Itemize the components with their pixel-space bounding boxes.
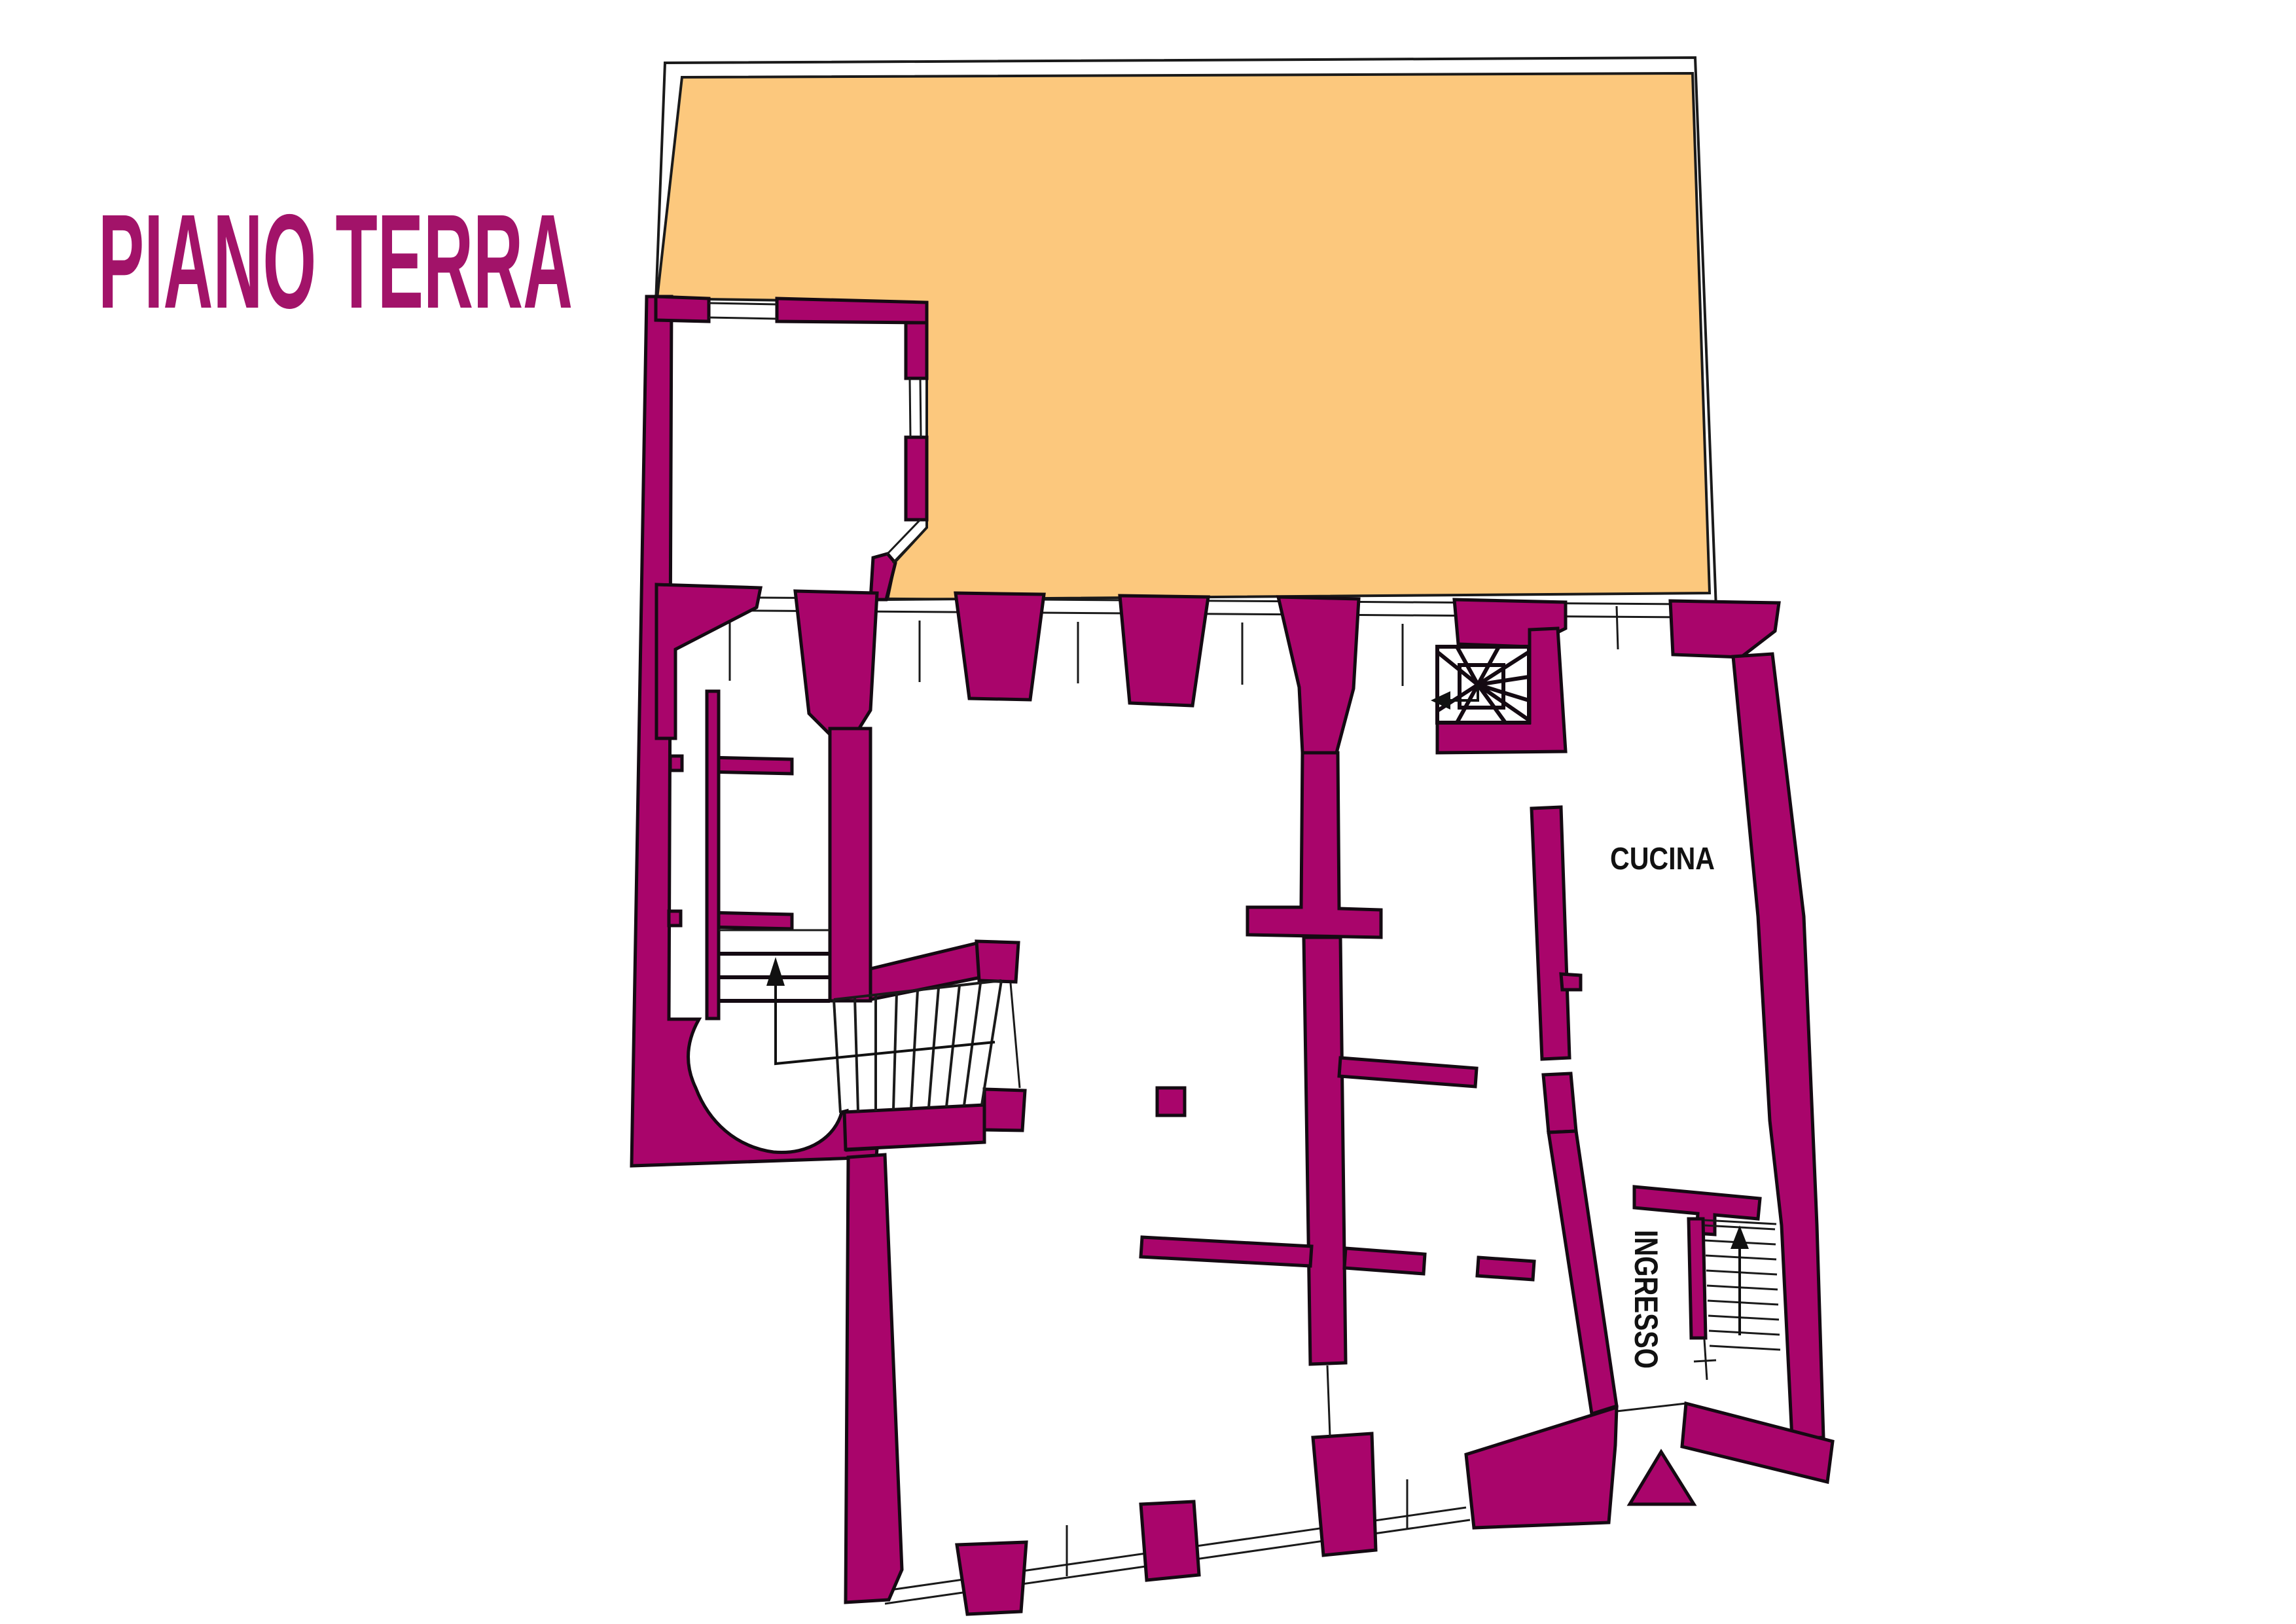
pillar [1278, 597, 1359, 753]
pillar [956, 593, 1044, 700]
lower-horizontal-wall-mid [1344, 1248, 1425, 1274]
room-label-cucina: CUCINA [1610, 842, 1715, 876]
pillar [1141, 1502, 1199, 1580]
door-stub [670, 756, 682, 770]
entrance-stair-strip [1689, 1219, 1706, 1338]
pillar [795, 591, 877, 750]
pillar [957, 1542, 1026, 1614]
winder-staircase [1431, 647, 1529, 723]
cucina-left-wall-lower [1543, 1074, 1576, 1132]
stair-pillar-bottom [984, 1089, 1025, 1130]
door-stub [669, 911, 681, 926]
up-arrow-icon [1731, 1225, 1749, 1249]
door-line [1327, 1365, 1330, 1436]
room-right-wall-lower [906, 437, 927, 520]
cucina-left-wall [1532, 807, 1570, 1059]
lower-left-outer-wall [846, 1155, 902, 1602]
floor-plan-page: PIANO TERRA [0, 0, 2296, 1624]
room-top-wall-right [777, 298, 927, 323]
pillar [1120, 596, 1208, 706]
room-label-ingresso: INGRESSO [1628, 1230, 1664, 1369]
cucina-wall-stub [1561, 974, 1581, 990]
room-top-wall-left [656, 297, 709, 321]
up-arrow-icon [766, 957, 785, 986]
stair-fan-bottom-wall [844, 1105, 984, 1149]
stair-pillar-top [977, 941, 1018, 982]
middle-wall-upper [1247, 753, 1381, 937]
ingresso-left-wall [1549, 1131, 1617, 1414]
lower-horizontal-wall-right [1477, 1257, 1534, 1280]
courtyard-area [657, 73, 1710, 600]
bottom-right-wall-mass [1466, 1407, 1617, 1528]
pillar [1313, 1434, 1376, 1555]
stair-right-wall [830, 729, 870, 1001]
top-right-corner-wall [1670, 601, 1779, 657]
mid-horizontal-wall [1339, 1058, 1477, 1087]
room-window-lines [709, 303, 927, 563]
entrance-triangle-icon [1630, 1452, 1694, 1504]
stair-left-thin-wall [707, 691, 719, 1019]
right-outer-wall [1733, 654, 1823, 1439]
lower-horizontal-wall-left [1141, 1237, 1312, 1266]
free-standing-pier [1157, 1088, 1185, 1115]
stair-fan-top-wall [870, 943, 984, 1000]
entrance-staircase [1694, 1220, 1780, 1380]
floor-plan-svg: PIANO TERRA [0, 0, 2296, 1624]
room-right-wall-upper [906, 323, 927, 378]
middle-wall-lower [1304, 937, 1346, 1364]
page-title: PIANO TERRA [98, 187, 573, 336]
